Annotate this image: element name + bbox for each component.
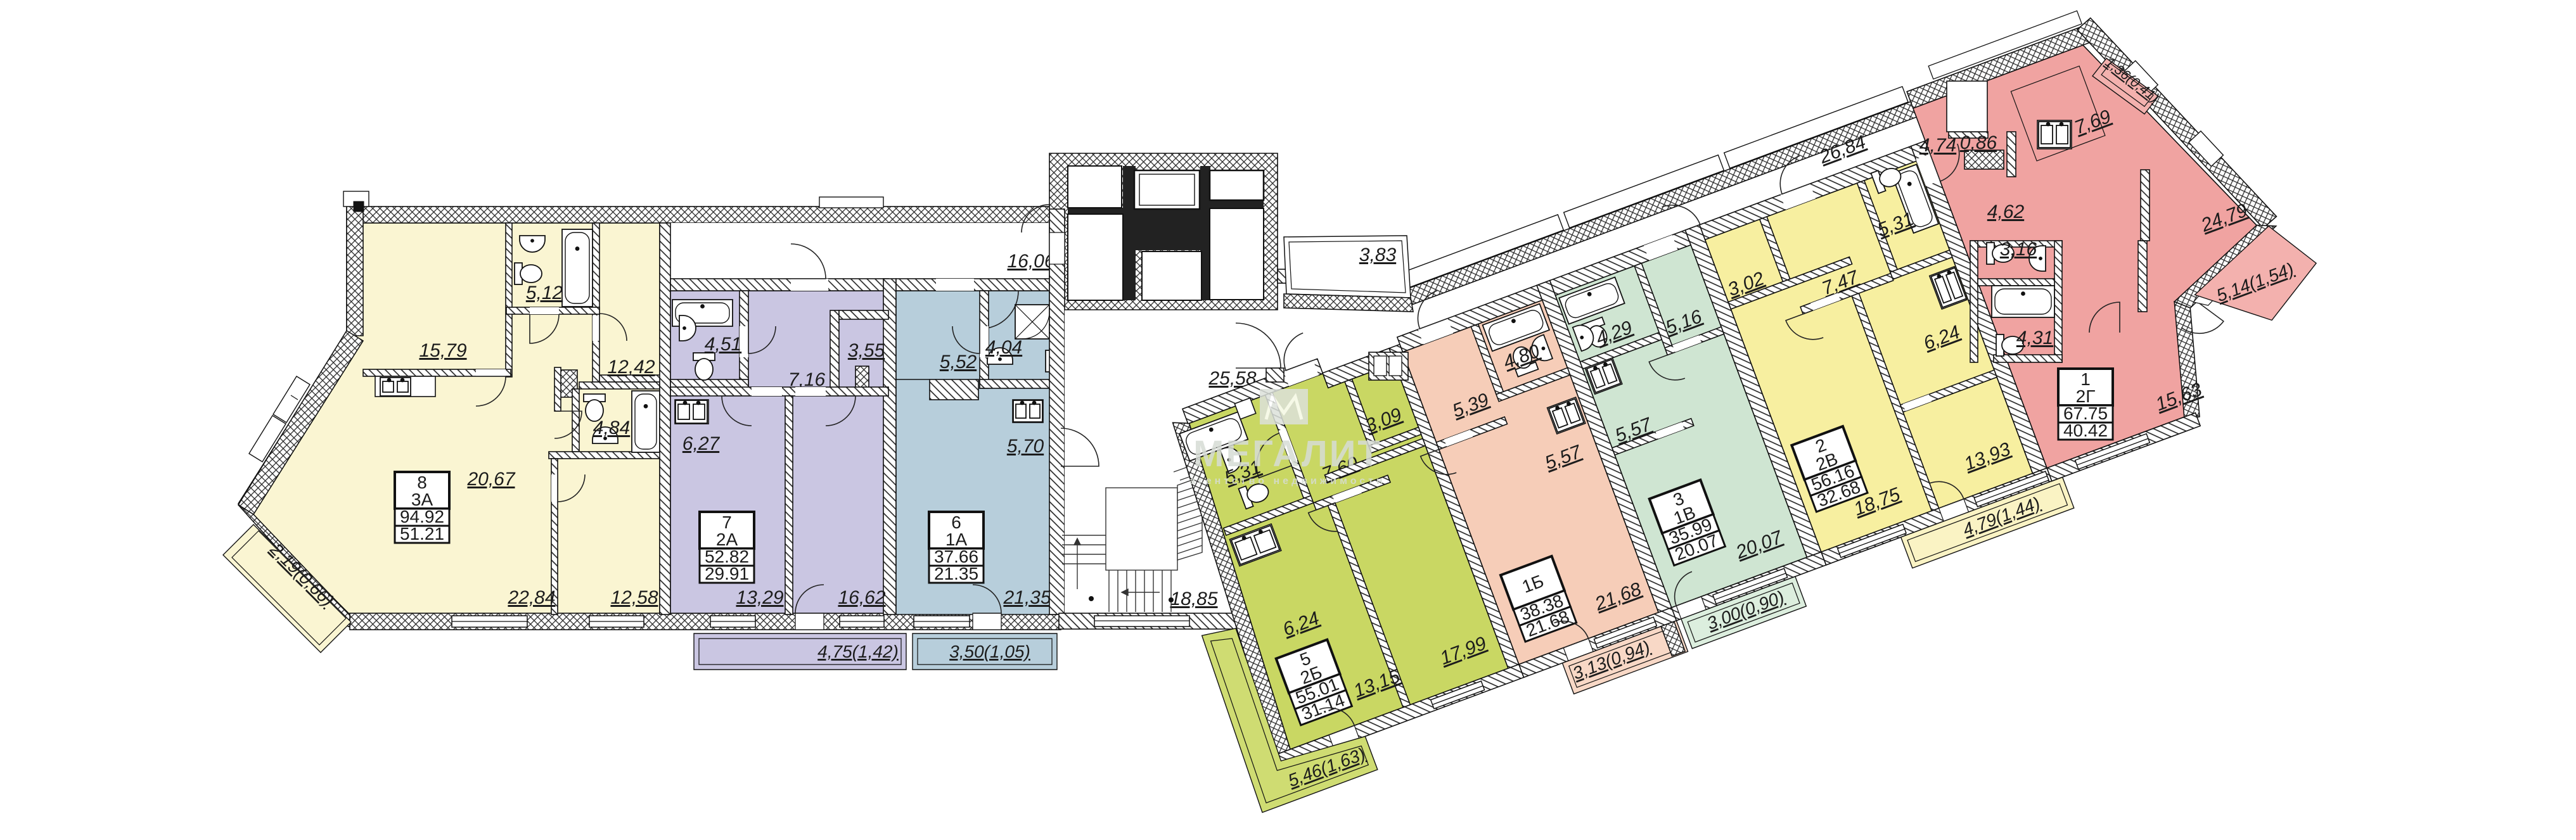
svg-text:6,27: 6,27 (682, 433, 721, 454)
svg-text:5,70: 5,70 (1007, 436, 1044, 457)
svg-text:4,74: 4,74 (1919, 135, 1956, 156)
svg-text:3,50(1,05): 3,50(1,05) (949, 642, 1030, 661)
svg-text:4,62: 4,62 (1987, 201, 2025, 222)
svg-text:29.91: 29.91 (705, 564, 749, 583)
svg-text:5,52: 5,52 (940, 352, 977, 372)
svg-text:4,51: 4,51 (705, 334, 741, 355)
svg-text:4,75(1,42): 4,75(1,42) (817, 642, 899, 661)
svg-text:20,67: 20,67 (466, 469, 515, 490)
svg-text:12,42: 12,42 (607, 357, 655, 378)
svg-text:0,86: 0,86 (1960, 132, 1997, 153)
svg-text:4,84: 4,84 (593, 417, 630, 438)
svg-text:21.35: 21.35 (934, 564, 978, 583)
svg-text:12,58: 12,58 (610, 587, 658, 608)
svg-text:18,85: 18,85 (1170, 589, 1217, 609)
svg-text:16,06: 16,06 (1007, 251, 1054, 272)
svg-text:40.42: 40.42 (2063, 421, 2108, 440)
svg-text:13,29: 13,29 (736, 587, 783, 608)
svg-text:МЕГАЛИТ: МЕГАЛИТ (1193, 433, 1382, 474)
svg-text:3,55: 3,55 (848, 340, 885, 361)
svg-text:21,35: 21,35 (1003, 587, 1051, 608)
svg-text:5,12: 5,12 (526, 283, 563, 303)
svg-text:16,62: 16,62 (838, 587, 885, 608)
svg-text:4,31: 4,31 (2016, 328, 2053, 348)
svg-text:3,16: 3,16 (2000, 239, 2037, 260)
svg-text:22,84: 22,84 (507, 587, 555, 608)
svg-text:4,04: 4,04 (985, 337, 1022, 358)
svg-text:агентство недвижимости: агентство недвижимости (1189, 476, 1386, 487)
svg-text:51.21: 51.21 (400, 524, 444, 544)
svg-text:3,83: 3,83 (1359, 245, 1397, 265)
svg-text:15,79: 15,79 (419, 340, 466, 361)
